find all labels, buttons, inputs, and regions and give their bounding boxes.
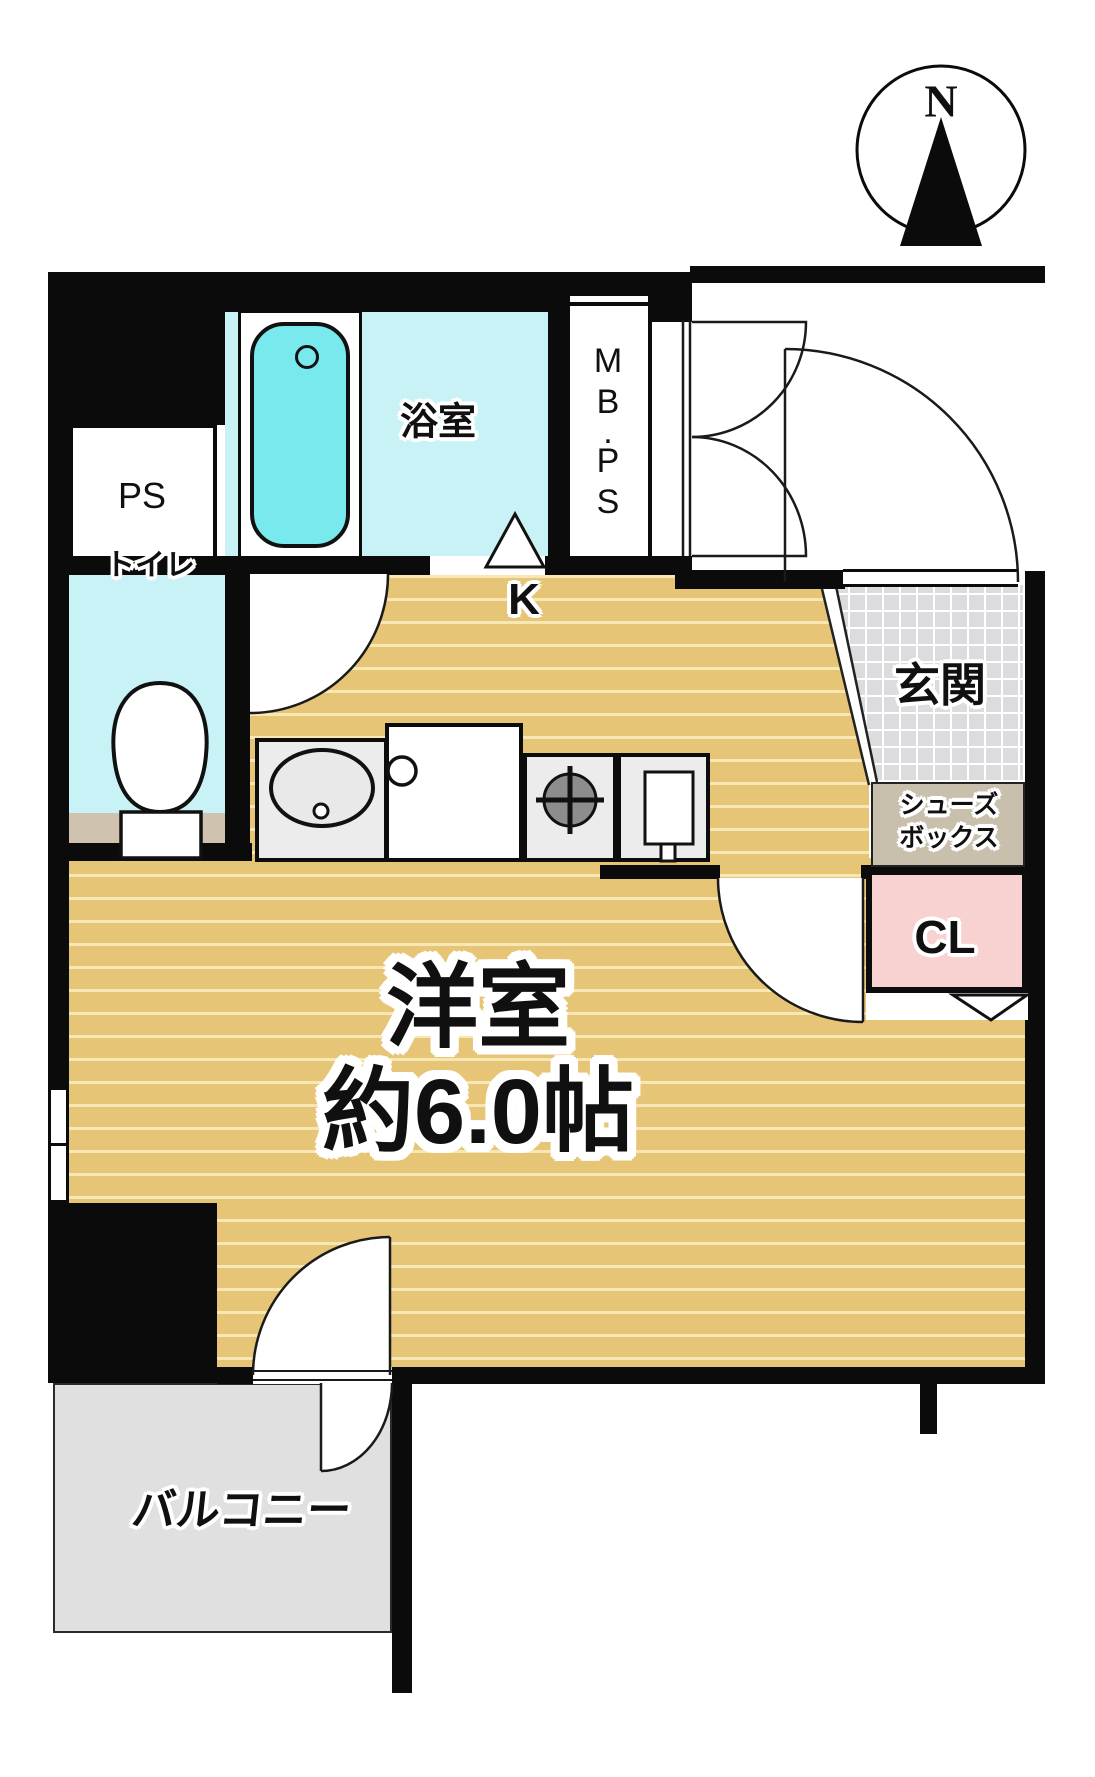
closet-door-icon — [953, 995, 1027, 1020]
floor-plan: N 浴室 PS M B . P S トイレ K 玄関 シューズ ボックス CL … — [0, 0, 1095, 1777]
toilet-label: トイレ — [105, 540, 195, 584]
mbps-char-m: M — [594, 341, 622, 382]
washbasin-icon — [271, 750, 373, 826]
compass-north-label: N — [924, 75, 957, 128]
mbps-char-s: S — [594, 482, 622, 523]
mbps-char-dot: . — [594, 423, 622, 441]
shoebox-label-line1: シューズ — [899, 789, 998, 822]
shoebox-label: シューズ ボックス — [899, 789, 998, 855]
mbps-double-door — [683, 320, 806, 556]
bathroom-door-icon — [486, 514, 544, 567]
main-room-label-line1: 洋室 — [322, 956, 634, 1060]
main-room-label: 洋室 約6.0帖 — [322, 956, 634, 1164]
balcony-label: バルコニー — [129, 1474, 355, 1538]
kitchen-label: K — [508, 575, 540, 625]
water-heater-icon — [645, 772, 693, 861]
kitchen-room-door-swing — [718, 878, 863, 1022]
washroom-door-swing — [250, 574, 388, 713]
mbps-label: M B . P S — [594, 341, 622, 523]
shoebox-label-line2: ボックス — [899, 822, 998, 855]
mbps-char-p: P — [594, 441, 622, 482]
front-door-swing — [785, 349, 1018, 582]
closet-label: CL — [914, 910, 975, 964]
sink-drain-icon — [388, 757, 416, 785]
balcony-door-swing-outside — [321, 1383, 392, 1471]
balcony-door-swing-inside — [253, 1237, 390, 1375]
toilet-fixture-icon — [113, 683, 206, 858]
stove-burner-icon — [536, 766, 604, 834]
main-room-label-line2: 約6.0帖 — [322, 1060, 634, 1164]
ps-label: PS — [118, 475, 166, 517]
bathroom-label: 浴室 — [400, 391, 476, 446]
entrance-label: 玄関 — [894, 649, 986, 715]
